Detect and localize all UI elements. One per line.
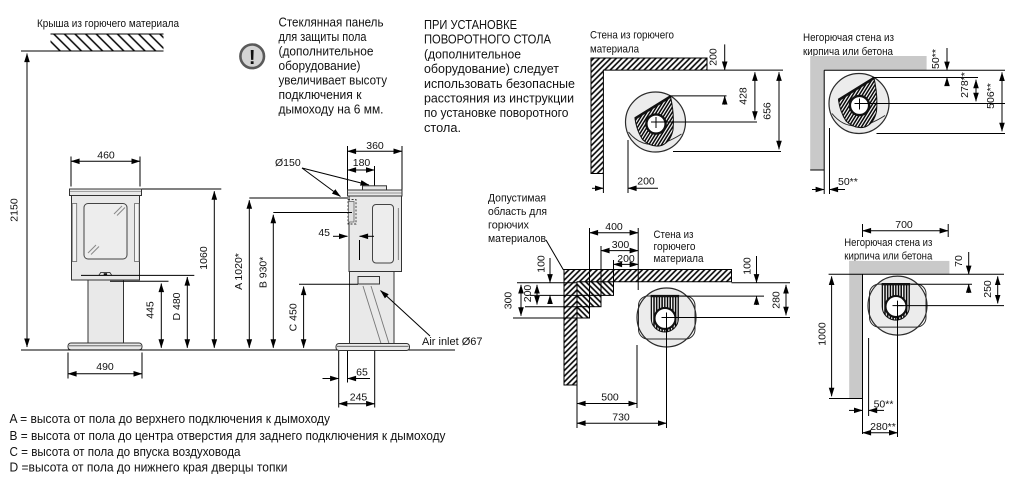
svg-text:по установке поворотного: по установке поворотного: [424, 105, 569, 120]
svg-text:(дополнительное: (дополнительное: [279, 44, 374, 59]
svg-text:Допустимая: Допустимая: [488, 193, 546, 205]
svg-text:дымоходу на 6 мм.: дымоходу на 6 мм.: [279, 102, 384, 117]
svg-text:использовать безопасные: использовать безопасные: [424, 76, 575, 91]
svg-text:278**: 278**: [959, 72, 971, 98]
svg-text:ПРИ УСТАНОВКЕ: ПРИ УСТАНОВКЕ: [424, 17, 517, 32]
svg-text:Стеклянная панель: Стеклянная панель: [279, 15, 384, 30]
svg-text:кирпича или бетона: кирпича или бетона: [844, 251, 933, 263]
svg-text:100: 100: [742, 257, 754, 275]
svg-text:стола.: стола.: [424, 120, 461, 135]
svg-text:300: 300: [612, 239, 630, 251]
svg-text:280: 280: [771, 291, 783, 309]
svg-text:Ø150: Ø150: [275, 157, 301, 169]
svg-text:65: 65: [356, 367, 368, 379]
svg-text:C 450: C 450: [288, 303, 300, 331]
svg-text:2150: 2150: [9, 198, 21, 222]
svg-text:Негорючая стена из: Негорючая стена из: [844, 237, 932, 249]
svg-text:200: 200: [522, 285, 534, 303]
svg-text:область для: область для: [488, 206, 547, 218]
svg-text:(дополнительное: (дополнительное: [424, 46, 521, 61]
svg-text:для защиты пола: для защиты пола: [279, 29, 368, 44]
svg-text:360: 360: [366, 140, 384, 152]
svg-text:оборудование) следует: оборудование) следует: [424, 61, 559, 76]
svg-text:200: 200: [617, 253, 635, 265]
svg-text:460: 460: [97, 150, 115, 162]
svg-text:300: 300: [503, 292, 515, 310]
svg-text:ПОВОРОТНОГО СТОЛА: ПОВОРОТНОГО СТОЛА: [424, 32, 551, 47]
svg-text:D =высота от пола до нижнего к: D =высота от пола до нижнего края дверцы…: [10, 461, 288, 475]
svg-text:B = высота от пола до центра о: B = высота от пола до центра отверстия д…: [10, 429, 447, 443]
svg-text:506**: 506**: [985, 83, 997, 109]
svg-text:горючего: горючего: [654, 241, 696, 253]
svg-text:50**: 50**: [930, 49, 942, 69]
svg-text:180: 180: [353, 157, 371, 169]
svg-text:Стена из: Стена из: [654, 229, 694, 241]
svg-text:200: 200: [708, 48, 720, 66]
svg-text:!: !: [249, 47, 256, 69]
svg-text:1060: 1060: [198, 246, 210, 270]
svg-text:490: 490: [96, 361, 114, 373]
svg-text:200: 200: [637, 176, 655, 188]
svg-text:подключения к: подключения к: [279, 87, 362, 102]
svg-text:Негорючая стена из: Негорючая стена из: [803, 32, 894, 44]
svg-text:материала: материала: [590, 44, 640, 56]
svg-text:увеличивает высоту: увеличивает высоту: [279, 73, 388, 88]
svg-text:250: 250: [982, 280, 994, 298]
svg-text:1000: 1000: [817, 322, 829, 346]
svg-text:45: 45: [318, 227, 330, 239]
svg-text:400: 400: [605, 221, 623, 233]
svg-text:материалов: материалов: [488, 233, 546, 245]
svg-text:245: 245: [350, 391, 368, 403]
svg-text:A = высота от пола до верхнего: A = высота от пола до верхнего подключен…: [10, 412, 331, 426]
svg-text:50**: 50**: [874, 399, 894, 411]
svg-text:730: 730: [612, 411, 630, 423]
svg-text:500: 500: [601, 392, 619, 404]
svg-text:B 930*: B 930*: [258, 257, 270, 289]
svg-text:100: 100: [536, 255, 548, 273]
svg-text:оборудование): оборудование): [279, 58, 361, 73]
svg-text:C = высота от пола до впуска в: C = высота от пола до впуска воздуховода: [10, 445, 241, 459]
svg-text:материала: материала: [654, 253, 705, 265]
svg-text:656: 656: [762, 102, 774, 120]
svg-text:Крыша из горючего материала: Крыша из горючего материала: [37, 18, 180, 30]
svg-text:горючих: горючих: [488, 220, 529, 232]
svg-text:280**: 280**: [870, 421, 896, 433]
svg-text:50**: 50**: [838, 176, 858, 188]
svg-text:Стена из горючего: Стена из горючего: [590, 30, 674, 42]
svg-text:Air inlet Ø67: Air inlet Ø67: [422, 336, 483, 348]
svg-text:445: 445: [145, 301, 157, 319]
svg-text:428: 428: [738, 87, 750, 105]
svg-text:700: 700: [895, 219, 913, 231]
svg-text:A 1020*: A 1020*: [233, 253, 245, 290]
svg-text:расстояния из инструкции: расстояния из инструкции: [424, 91, 574, 106]
svg-text:D 480: D 480: [171, 292, 183, 320]
svg-text:70: 70: [953, 255, 965, 267]
